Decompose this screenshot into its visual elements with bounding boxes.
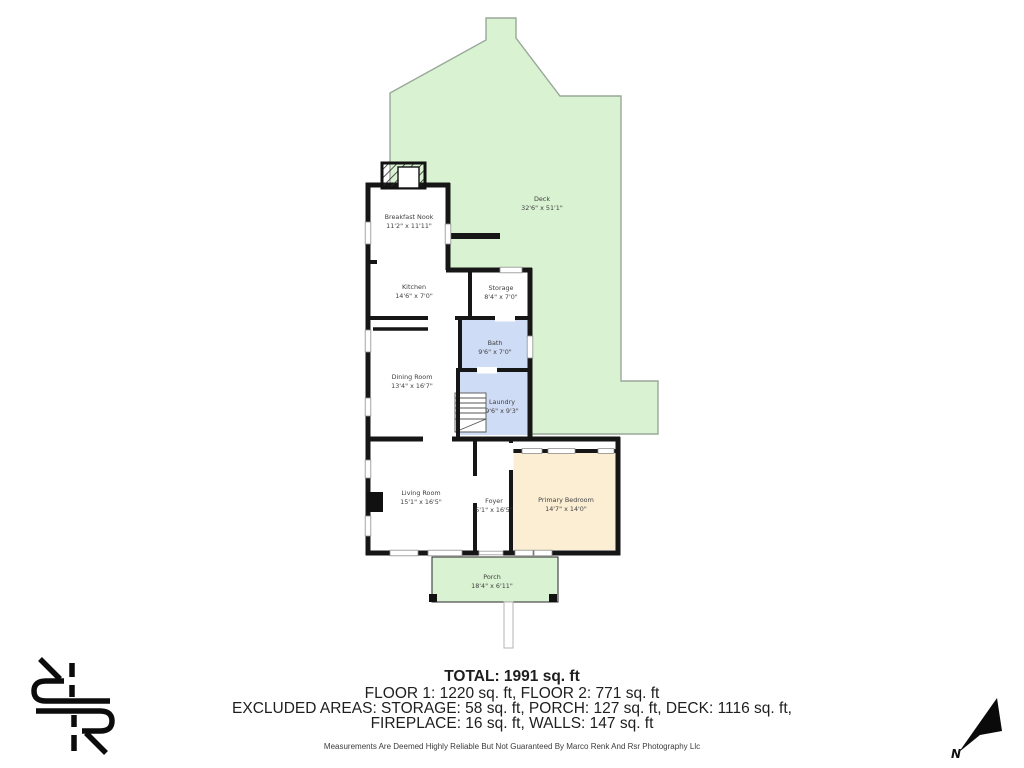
deck-dims: 32'6" x 51'1": [521, 204, 563, 212]
disclaimer-text: Measurements Are Deemed Highly Reliable …: [0, 742, 1024, 751]
breakfast-nook-label: Breakfast Nook: [385, 213, 434, 221]
porch-post-left: [429, 594, 437, 602]
storage-label: Storage: [488, 284, 513, 292]
kitchen-label: Kitchen: [402, 283, 426, 291]
north-label: N: [951, 747, 961, 761]
total-area-line: TOTAL: 1991 sq. ft: [0, 669, 1024, 685]
front-door-threshold: [479, 551, 503, 555]
storage-dims: 8'4" x 7'0": [484, 293, 518, 301]
chimney-fireplace: [382, 163, 425, 188]
area-summary: TOTAL: 1991 sq. ft FLOOR 1: 1220 sq. ft,…: [0, 669, 1024, 751]
excluded-areas-line-1: EXCLUDED AREAS: STORAGE: 58 sq. ft, PORC…: [0, 701, 1024, 716]
floors-line: FLOOR 1: 1220 sq. ft, FLOOR 2: 771 sq. f…: [0, 686, 1024, 701]
rr-photography-logo-icon: [12, 655, 122, 765]
dining-room-dims: 13'4" x 16'7": [391, 382, 433, 390]
primary-bedroom-label: Primary Bedroom: [538, 496, 594, 504]
breakfast-nook-dims: 11'2" x 11'11": [386, 222, 432, 230]
excluded-areas-line-2: FIREPLACE: 16 sq. ft, WALLS: 147 sq. ft: [0, 716, 1024, 731]
laundry-dims: 9'6" x 9'3": [485, 407, 519, 415]
north-arrow-icon: N: [945, 688, 1015, 763]
living-room-fireplace: [367, 492, 383, 512]
living-room-dims: 15'1" x 16'5": [400, 498, 442, 506]
floorplan-drawing: Deck 32'6" x 51'1" Breakfast Nook 11'2" …: [0, 0, 1024, 660]
porch-area: [429, 557, 558, 648]
porch-label: Porch: [483, 573, 501, 581]
laundry-label: Laundry: [489, 398, 515, 406]
floorplan-page: Deck 32'6" x 51'1" Breakfast Nook 11'2" …: [0, 0, 1024, 768]
kitchen-dims: 14'6" x 7'0": [395, 292, 433, 300]
deck-label: Deck: [534, 195, 550, 203]
walkway: [504, 602, 513, 648]
primary-bedroom-dims: 14'7" x 14'0": [545, 505, 587, 513]
living-room-label: Living Room: [401, 489, 440, 497]
foyer-label: Foyer: [485, 497, 503, 505]
bath-label: Bath: [488, 339, 503, 347]
porch-post-right: [549, 594, 557, 602]
dining-room-label: Dining Room: [392, 373, 433, 381]
porch-dims: 18'4" x 6'11": [471, 582, 513, 590]
bath-dims: 9'6" x 7'0": [478, 348, 512, 356]
foyer-dims: 5'1" x 16'5": [475, 506, 513, 514]
